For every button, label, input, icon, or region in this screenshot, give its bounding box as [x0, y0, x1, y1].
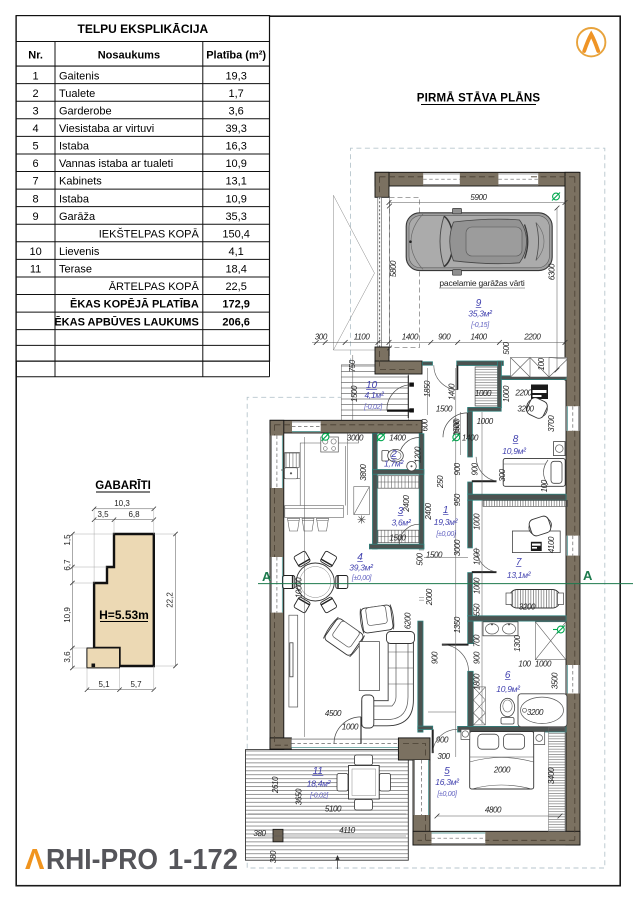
svg-text:1500: 1500 [426, 551, 443, 560]
svg-text:5800: 5800 [389, 260, 398, 277]
svg-text:39,3: 39,3 [225, 123, 246, 135]
svg-text:3650: 3650 [295, 788, 304, 805]
svg-text:9: 9 [33, 211, 39, 223]
svg-text:10,9м²: 10,9м² [502, 446, 527, 456]
svg-text:[±0,00]: [±0,00] [436, 791, 458, 798]
svg-text:10,9: 10,9 [63, 607, 72, 623]
svg-text:2: 2 [33, 88, 39, 100]
svg-text:Garderobe: Garderobe [59, 105, 112, 117]
svg-text:4800: 4800 [485, 806, 502, 815]
svg-text:39,3м²: 39,3м² [349, 563, 374, 573]
svg-text:1000: 1000 [472, 548, 481, 565]
svg-text:1100: 1100 [354, 332, 371, 341]
svg-text:Kabinets: Kabinets [59, 176, 102, 188]
svg-text:3,5: 3,5 [97, 510, 109, 519]
svg-text:900: 900 [436, 736, 449, 745]
svg-text:10: 10 [29, 246, 41, 258]
svg-text:2610: 2610 [271, 776, 280, 794]
svg-text:Tualete: Tualete [59, 88, 95, 100]
svg-text:1600: 1600 [453, 418, 462, 435]
svg-text:1400: 1400 [389, 434, 406, 443]
svg-text:380: 380 [269, 850, 278, 863]
svg-text:4110: 4110 [339, 826, 356, 835]
svg-text:13,1м²: 13,1м² [507, 570, 532, 580]
svg-text:Λ: Λ [25, 844, 45, 876]
svg-text:3200: 3200 [519, 603, 536, 612]
svg-text:Viesistaba ar virtuvi: Viesistaba ar virtuvi [59, 123, 154, 135]
svg-text:8: 8 [33, 193, 39, 205]
svg-text:22,5: 22,5 [225, 281, 246, 293]
svg-text:1000: 1000 [342, 723, 359, 732]
svg-text:GABARĪTI: GABARĪTI [95, 480, 151, 492]
svg-text:10,3: 10,3 [114, 499, 130, 508]
svg-text:Lievenis: Lievenis [59, 246, 100, 258]
svg-text:250: 250 [436, 475, 445, 489]
svg-text:380: 380 [253, 829, 266, 838]
svg-text:3400: 3400 [547, 767, 556, 784]
svg-text:18,4: 18,4 [225, 264, 246, 276]
svg-text:3000: 3000 [347, 434, 364, 443]
svg-text:900: 900 [438, 332, 451, 341]
svg-text:18,4м²: 18,4м² [307, 779, 332, 789]
svg-text:A: A [262, 569, 272, 584]
svg-text:2200: 2200 [523, 332, 541, 341]
svg-text:6,7: 6,7 [63, 559, 72, 571]
svg-text:Vannas istaba ar tualeti: Vannas istaba ar tualeti [59, 158, 173, 170]
svg-text:4,1м²: 4,1м² [365, 390, 385, 400]
svg-text:pacelamie garāžas vārti: pacelamie garāžas vārti [439, 278, 524, 288]
svg-text:300: 300 [498, 468, 507, 481]
svg-text:1500: 1500 [436, 405, 453, 414]
svg-text:1000: 1000 [475, 389, 492, 398]
svg-text:3000: 3000 [453, 539, 462, 556]
svg-text:950: 950 [453, 493, 462, 506]
svg-text:10,9: 10,9 [225, 193, 246, 205]
svg-text:900: 900 [453, 462, 462, 475]
svg-text:6,8: 6,8 [128, 510, 140, 519]
svg-text:4: 4 [33, 123, 39, 135]
svg-text:Istaba: Istaba [59, 193, 90, 205]
svg-text:1400: 1400 [402, 332, 419, 341]
svg-text:3: 3 [33, 105, 39, 117]
svg-text:6200: 6200 [403, 612, 412, 629]
svg-text:[±0,00]: [±0,00] [351, 575, 373, 582]
svg-text:2400: 2400 [424, 502, 433, 520]
svg-text:H=5.53m: H=5.53m [99, 608, 149, 622]
svg-text:3,6: 3,6 [229, 105, 244, 117]
svg-text:300: 300 [315, 332, 328, 341]
svg-text:4500: 4500 [325, 709, 342, 718]
svg-text:1,7: 1,7 [229, 88, 244, 100]
svg-text:10,9: 10,9 [225, 158, 246, 170]
svg-text:600: 600 [421, 418, 430, 431]
svg-text:3,6м²: 3,6м² [392, 518, 412, 528]
svg-text:7: 7 [33, 176, 39, 188]
svg-text:900: 900 [431, 651, 440, 664]
svg-text:6: 6 [33, 158, 39, 170]
svg-text:3800: 3800 [359, 464, 368, 481]
svg-text:500: 500 [502, 341, 511, 354]
svg-text:1000: 1000 [502, 385, 511, 402]
svg-text:10,9м²: 10,9м² [496, 684, 521, 694]
svg-text:3,6: 3,6 [63, 651, 72, 663]
svg-text:ĀRTELPAS KOPĀ: ĀRTELPAS KOPĀ [109, 281, 200, 293]
svg-text:1350: 1350 [453, 616, 462, 633]
svg-text:[-0,02]: [-0,02] [363, 404, 383, 411]
svg-text:500: 500 [416, 552, 425, 565]
svg-text:5: 5 [33, 141, 39, 153]
svg-text:2200: 2200 [514, 388, 532, 397]
svg-text:1000: 1000 [477, 417, 494, 426]
svg-text:3700: 3700 [547, 415, 556, 432]
svg-text:1,7м²: 1,7м² [384, 459, 404, 469]
svg-text:5,1: 5,1 [98, 680, 110, 689]
svg-text:Nr.: Nr. [28, 50, 43, 62]
svg-text:A: A [583, 568, 593, 583]
svg-text:1500: 1500 [389, 534, 406, 543]
svg-text:3500: 3500 [550, 672, 559, 689]
svg-text:Istaba: Istaba [59, 141, 90, 153]
svg-text:IEKŠTELPAS KOPĀ: IEKŠTELPAS KOPĀ [99, 227, 200, 240]
svg-text:RHI-PRO: RHI-PRO [46, 844, 158, 876]
svg-text:35,3м²: 35,3м² [468, 309, 493, 319]
svg-text:4,1: 4,1 [229, 246, 244, 258]
svg-text:1: 1 [33, 70, 39, 82]
svg-text:300: 300 [437, 752, 450, 761]
svg-text:2000: 2000 [493, 766, 511, 775]
svg-text:35,3: 35,3 [225, 211, 246, 223]
svg-text:4100: 4100 [547, 536, 556, 553]
svg-text:3200: 3200 [517, 404, 534, 413]
svg-text:2000: 2000 [425, 588, 434, 606]
svg-text:1400: 1400 [470, 332, 487, 341]
svg-text:5100: 5100 [325, 805, 342, 814]
svg-text:1800: 1800 [472, 673, 481, 690]
svg-text:Garāža: Garāža [59, 211, 96, 223]
svg-text:ĒKAS APBŪVES LAUKUMS: ĒKAS APBŪVES LAUKUMS [54, 316, 198, 328]
svg-text:172,9: 172,9 [222, 299, 250, 311]
svg-text:19,3м²: 19,3м² [434, 517, 459, 527]
svg-text:5,7: 5,7 [130, 680, 142, 689]
svg-text:16,3м²: 16,3м² [435, 777, 460, 787]
svg-text:19,3: 19,3 [225, 70, 246, 82]
svg-text:206,6: 206,6 [222, 316, 250, 328]
svg-text:13,1: 13,1 [225, 176, 246, 188]
svg-text:1000: 1000 [472, 513, 481, 530]
svg-text:10000: 10000 [295, 577, 304, 598]
svg-text:Platība (m²): Platība (m²) [206, 50, 266, 62]
svg-text:1300: 1300 [513, 635, 522, 652]
svg-text:11: 11 [30, 264, 41, 276]
svg-text:3200: 3200 [527, 708, 544, 717]
svg-text:100: 100 [540, 479, 549, 492]
svg-text:5900: 5900 [470, 193, 487, 202]
svg-text:150,4: 150,4 [222, 228, 250, 240]
svg-text:22,2: 22,2 [166, 592, 175, 608]
svg-text:Terase: Terase [59, 264, 92, 276]
svg-text:TELPU EKSPLIKĀCIJA: TELPU EKSPLIKĀCIJA [78, 22, 209, 36]
svg-text:[-0,02]: [-0,02] [309, 793, 329, 800]
svg-text:100: 100 [537, 357, 546, 370]
svg-text:100: 100 [518, 659, 531, 668]
svg-text:[±0,00]: [±0,00] [435, 531, 457, 538]
svg-text:PIRMĀ STĀVA PLĀNS: PIRMĀ STĀVA PLĀNS [417, 93, 541, 105]
svg-text:ĒKAS KOPĒJĀ PLATĪBA: ĒKAS KOPĒJĀ PLATĪBA [70, 299, 199, 311]
svg-text:1000: 1000 [472, 577, 481, 594]
svg-text:550: 550 [472, 603, 481, 616]
svg-text:[-0,15]: [-0,15] [470, 322, 490, 329]
svg-text:1200: 1200 [414, 446, 423, 463]
svg-text:900: 900 [470, 462, 479, 475]
svg-text:700: 700 [472, 634, 481, 647]
svg-text:1-172: 1-172 [168, 844, 238, 876]
svg-text:Gaitenis: Gaitenis [59, 70, 100, 82]
svg-text:1500: 1500 [350, 385, 359, 402]
svg-text:1400: 1400 [462, 434, 479, 443]
svg-text:6300: 6300 [548, 263, 557, 280]
svg-text:1,5: 1,5 [63, 534, 72, 546]
svg-text:1000: 1000 [535, 659, 552, 668]
svg-text:16,3: 16,3 [225, 141, 246, 153]
svg-text:900: 900 [472, 651, 481, 664]
svg-text:1400: 1400 [448, 383, 457, 400]
svg-text:Nosaukums: Nosaukums [98, 50, 160, 62]
